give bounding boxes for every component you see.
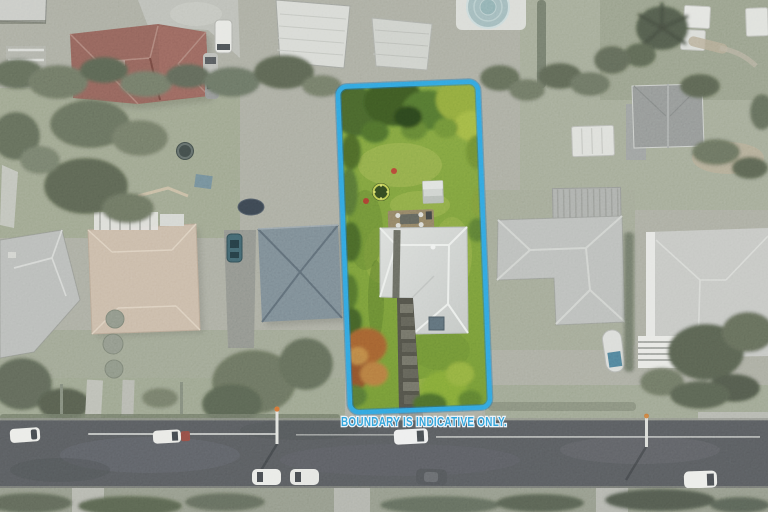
aerial-photo: BOUNDARY IS INDICATIVE ONLY. BOUNDARY IS…	[0, 0, 768, 512]
photo-grain-overlay	[0, 0, 768, 512]
aerial-photo-canvas: BOUNDARY IS INDICATIVE ONLY. BOUNDARY IS…	[0, 0, 768, 512]
